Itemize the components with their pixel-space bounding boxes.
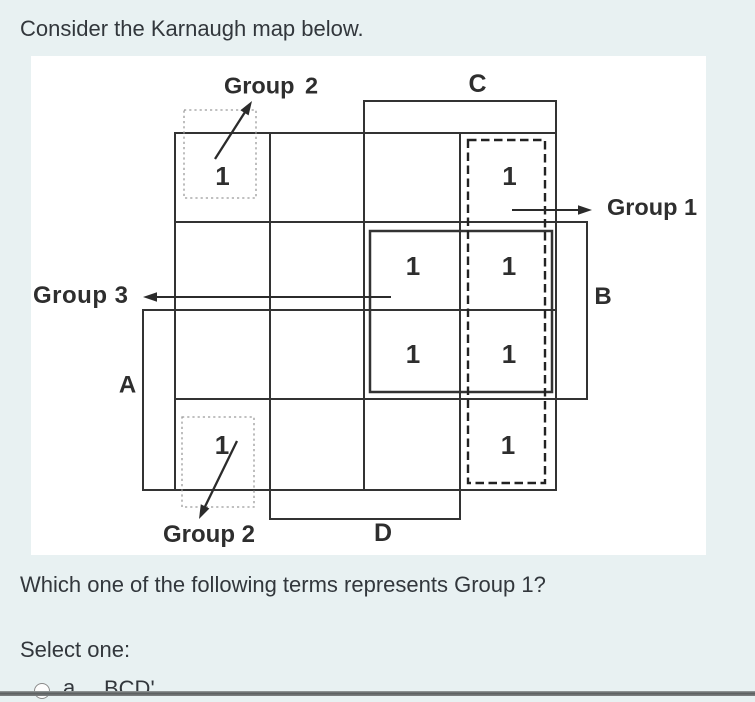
svg-text:Group: Group xyxy=(224,73,295,99)
svg-text:2: 2 xyxy=(305,73,318,99)
svg-text:1: 1 xyxy=(502,251,516,281)
svg-text:D: D xyxy=(374,519,392,547)
svg-text:1: 1 xyxy=(502,161,516,191)
svg-text:A: A xyxy=(119,372,136,399)
svg-text:1: 1 xyxy=(215,430,229,460)
svg-text:Group 1: Group 1 xyxy=(607,194,697,220)
svg-text:1: 1 xyxy=(501,430,515,460)
svg-text:1: 1 xyxy=(406,251,420,281)
svg-text:Group 3: Group 3 xyxy=(33,282,129,309)
svg-text:B: B xyxy=(594,283,611,310)
svg-text:1: 1 xyxy=(406,339,420,369)
svg-text:1: 1 xyxy=(502,339,516,369)
svg-text:C: C xyxy=(468,70,486,98)
svg-text:Group 2: Group 2 xyxy=(163,521,255,548)
svg-text:1: 1 xyxy=(215,161,229,191)
